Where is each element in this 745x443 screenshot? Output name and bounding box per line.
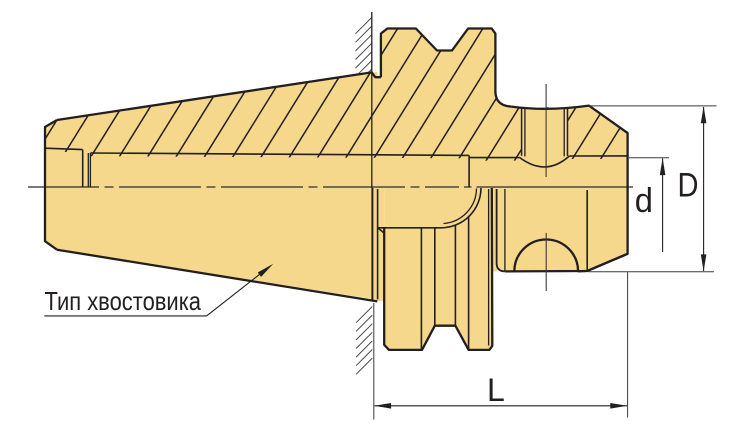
svg-text:d: d — [635, 182, 653, 220]
svg-text:L: L — [487, 372, 505, 408]
svg-text:D: D — [678, 167, 699, 205]
svg-text:Тип хвостовика: Тип хвостовика — [45, 286, 202, 316]
